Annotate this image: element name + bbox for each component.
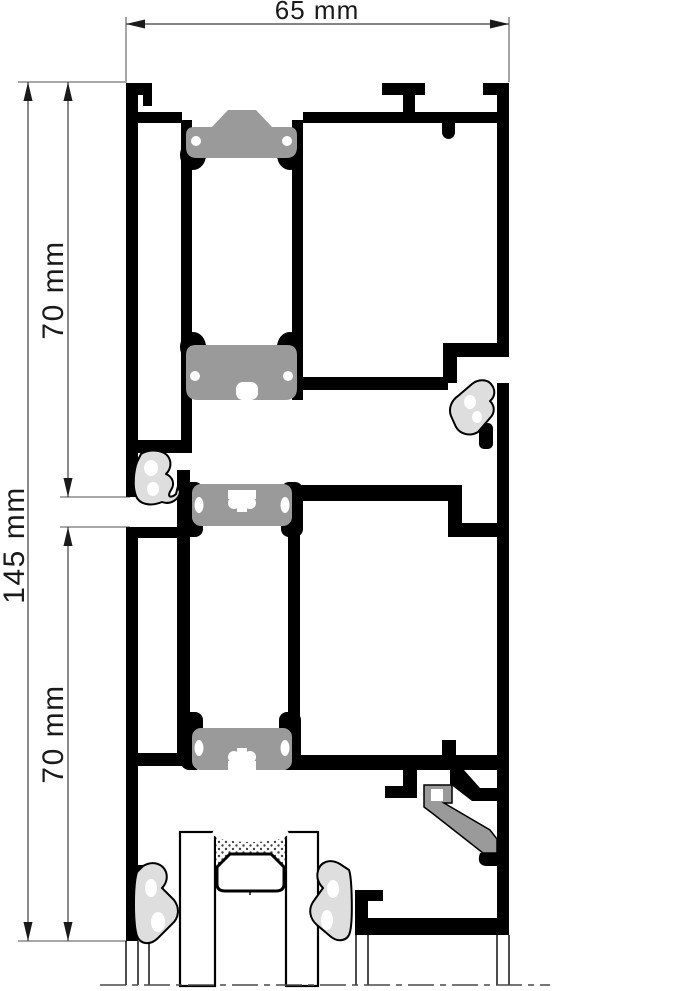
screw-port [195,740,204,756]
upper-right-wall [483,83,509,353]
screw-port [283,371,293,381]
screw-port [191,136,201,146]
upper-profile-aluminium [126,83,509,497]
gasket-hole [145,879,157,897]
upper-inner-wall-left [181,120,192,453]
screw-port [281,497,290,513]
lower-top-web-left [126,527,178,538]
thermal-break-notch [237,498,247,512]
glass-pane-outer [180,832,215,986]
dim-arrow-bottom [64,922,73,941]
screw-port [195,497,204,513]
lower-bottom-face-web [366,918,509,935]
lower-bottom-web-left [126,753,190,766]
dim-arrow-top [64,82,73,101]
gasket-hole [144,460,158,476]
profile-cross-section-drawing: 65 mm 145 mm 70 mm 70 mm [0,0,686,991]
thermal-break-notch [237,748,247,762]
dim-arrow-bottom [64,478,73,497]
dim-arrow-right [490,20,509,29]
dimension-label-overall-height: 145 mm [0,486,31,603]
dimension-lower-height: 70 mm [37,527,73,941]
gasket-hole [321,910,333,930]
screw-port [282,136,292,146]
dimension-overall-height: 145 mm [0,82,33,941]
technical-drawing-canvas: 65 mm 145 mm 70 mm 70 mm [0,0,686,991]
upper-left-wall [126,83,152,497]
gasket-hole [327,880,339,898]
upper-bottom-web-right [303,377,448,390]
support-notch [431,789,443,801]
support-bracket [450,770,497,801]
gasket-hole [472,411,482,423]
dimension-overall-width: 65 mm [126,0,509,29]
glazing-clip-foot [385,786,405,798]
lower-thermal-breaks [192,484,292,770]
upper-hanging-tab [442,123,455,139]
glazing-rebate-bar [355,890,383,901]
upper-top-web-right [303,112,498,123]
web-tab [442,740,456,756]
dim-arrow-left [126,20,145,29]
gasket-hole [464,395,476,409]
upper-right-elbow [443,343,509,383]
thermal-break-strip-top [186,110,297,158]
dim-arrow-top [64,527,73,546]
upper-thermal-breaks [186,110,297,400]
gasket-hole [151,912,165,932]
gasket-hole [147,482,159,496]
upper-t-clip [382,83,425,113]
dimension-label-upper-height: 70 mm [37,240,70,339]
glazing-clip-leg [403,770,417,798]
lower-bottom-web-right [290,755,509,770]
screw-port [281,740,290,756]
sealant-meniscus [213,824,289,842]
dimension-label-overall-width: 65 mm [275,0,359,25]
thermal-break-notch [236,382,258,400]
dimension-upper-height: 70 mm [37,82,73,497]
lower-top-web-right [294,485,455,501]
dim-arrow-bottom [24,922,33,941]
dimension-label-lower-height: 70 mm [37,684,70,783]
dim-arrow-top [24,82,33,101]
centre-gasket-left [134,451,180,505]
screw-port [190,371,200,381]
upper-top-web-left [137,112,182,123]
glass-spacer-bar [217,854,284,891]
